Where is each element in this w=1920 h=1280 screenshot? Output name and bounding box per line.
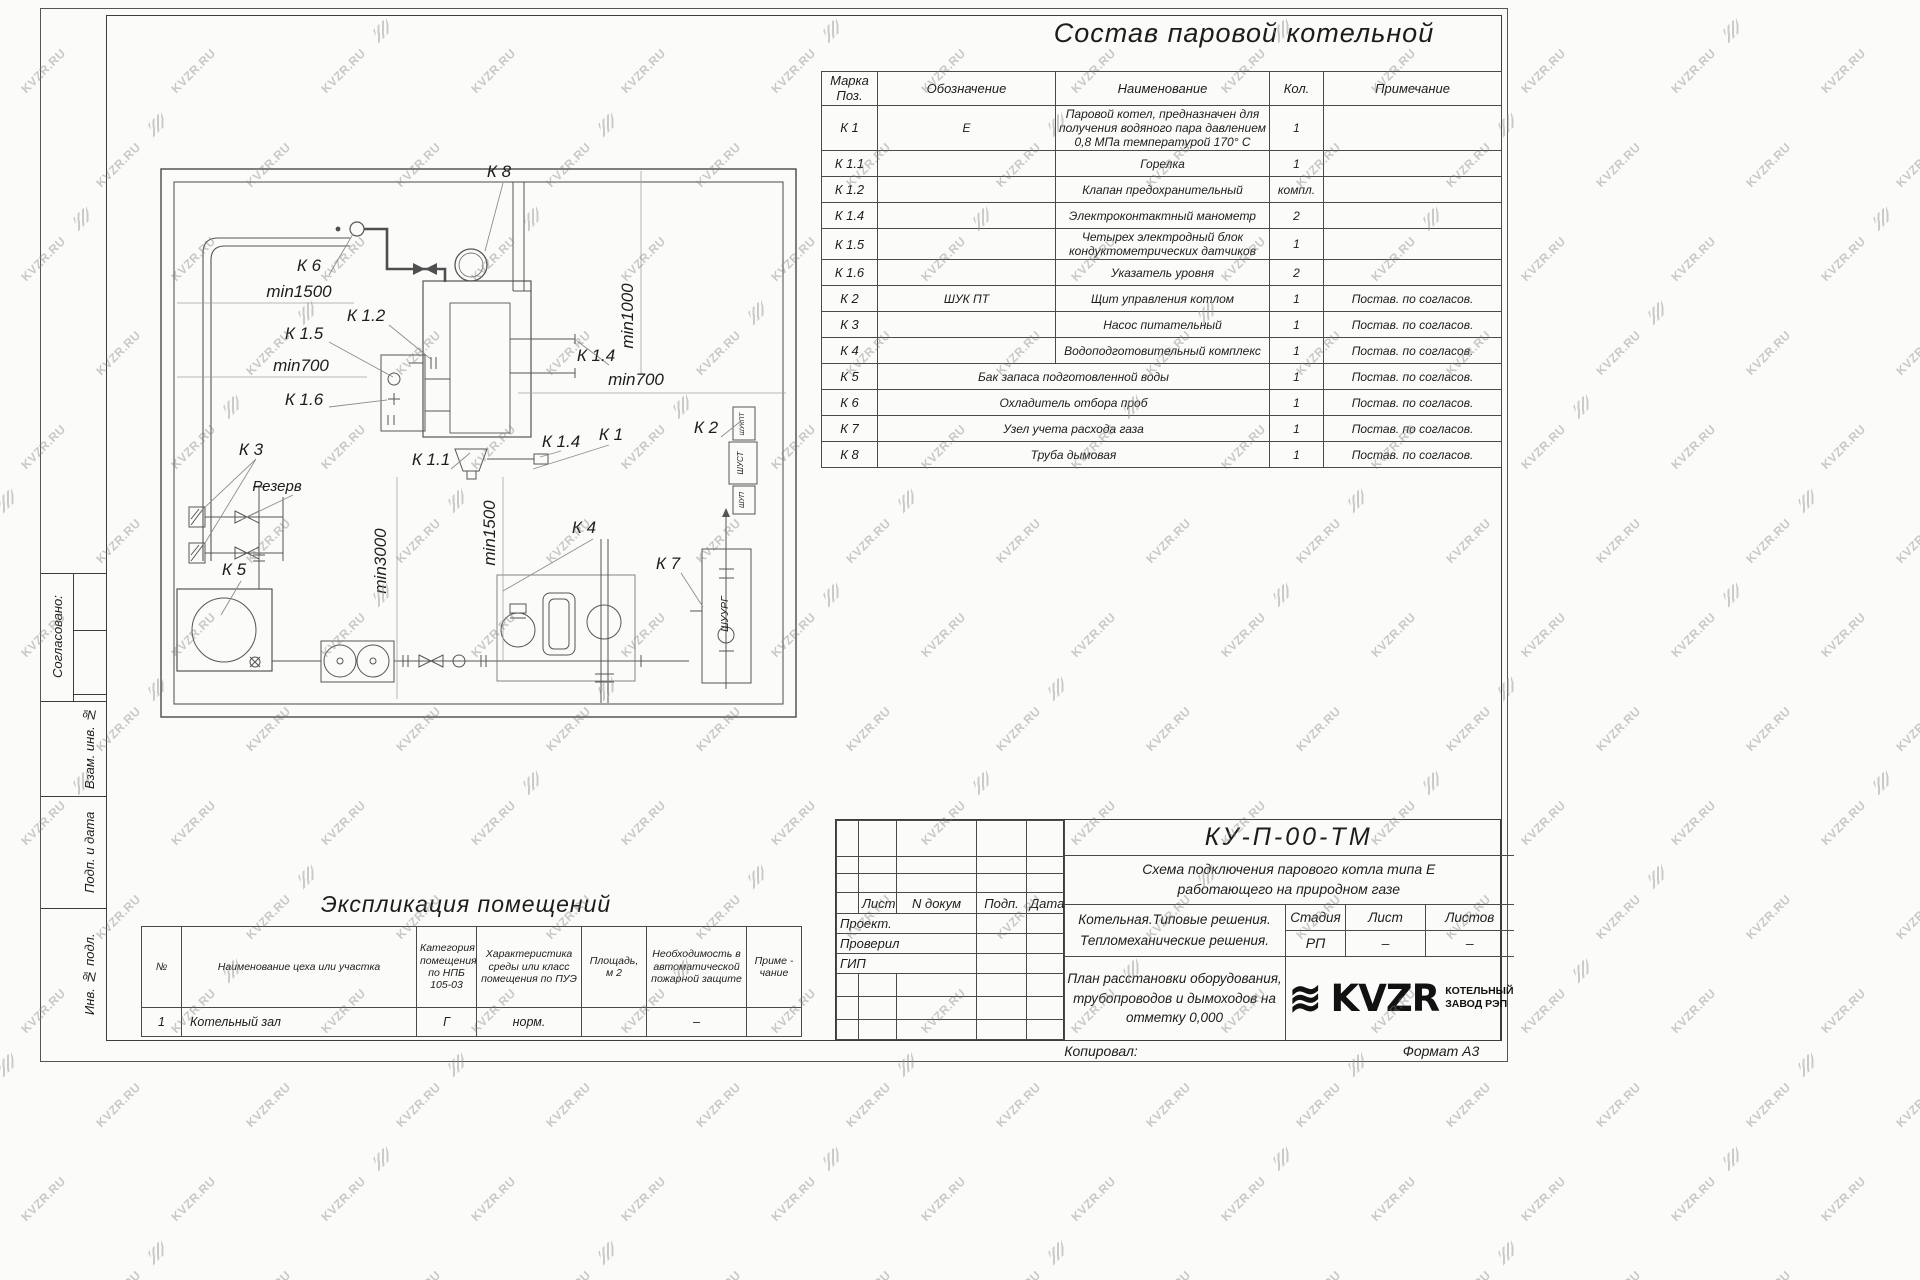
watermark-text: KVZR.RU bbox=[93, 1080, 143, 1130]
cell-empty bbox=[837, 1020, 859, 1040]
watermark-text: KVZR.RU bbox=[1368, 1174, 1418, 1224]
title-block-row: Проверил bbox=[837, 934, 1065, 954]
explication-cell: норм. bbox=[477, 1008, 582, 1037]
cell-empty bbox=[859, 874, 897, 893]
watermark-text: KVZR.RU bbox=[93, 1268, 143, 1280]
watermark-text: KVZR.RU bbox=[1893, 0, 1920, 2]
plan-label: ШУП bbox=[739, 491, 746, 508]
equipment-cell-note bbox=[1324, 229, 1502, 260]
equipment-cell-designation: ШУК ПТ bbox=[878, 286, 1056, 312]
stage-table: Стадия Лист Листов РП – – bbox=[1286, 905, 1514, 956]
stage-value: РП bbox=[1286, 931, 1346, 956]
equipment-cell-note bbox=[1324, 105, 1502, 150]
col-qty: Кол. bbox=[1270, 72, 1324, 106]
object-name: Котельная.Типовые решения. Тепломеханиче… bbox=[1064, 905, 1286, 956]
equipment-cell-note: Постав. по согласов. bbox=[1324, 312, 1502, 338]
watermark-text: KVZR.RU bbox=[93, 0, 143, 2]
col-designation: Обозначение bbox=[878, 72, 1056, 106]
equipment-cell-qty: 2 bbox=[1270, 203, 1324, 229]
object-line2: Тепломеханические решения. bbox=[1080, 931, 1269, 951]
kvzr-logo-text: KVZR bbox=[1331, 977, 1440, 1020]
equipment-cell-mark: К 1.2 bbox=[822, 177, 878, 203]
cell-empty bbox=[859, 857, 897, 874]
plan-label: min1000 bbox=[618, 283, 637, 349]
cell-empty bbox=[1027, 914, 1065, 934]
watermark-text: KVZR.RU bbox=[1893, 1080, 1920, 1130]
title-block-row bbox=[837, 974, 1065, 997]
equipment-cell-mark: К 6 bbox=[822, 390, 878, 416]
explication-col-5: Необходимость в автоматической пожарной … bbox=[647, 927, 747, 1008]
watermark-text: KVZR.RU bbox=[1818, 46, 1868, 96]
watermark-text: KVZR.RU bbox=[393, 1080, 443, 1130]
cell-empty bbox=[1027, 1020, 1065, 1040]
explication-col-3: Характеристика среды или класс помещения… bbox=[477, 927, 582, 1008]
cell-empty bbox=[837, 974, 859, 997]
equipment-cell-note: Постав. по согласов. bbox=[1324, 364, 1502, 390]
watermark-text: KVZR.RU bbox=[1518, 610, 1568, 660]
cell-empty bbox=[837, 893, 859, 914]
signature-role-label: Проверил bbox=[837, 934, 977, 954]
equipment-cell-qty: 1 bbox=[1270, 312, 1324, 338]
watermark-text: KVZR.RU bbox=[1443, 1268, 1493, 1280]
watermark-text: KVZR.RU bbox=[1593, 0, 1643, 2]
cell-empty bbox=[897, 1020, 977, 1040]
plan-label: ШУСТ bbox=[736, 450, 745, 474]
watermark-text: KVZR.RU bbox=[1068, 1174, 1118, 1224]
equipment-cell-designation: Бак запаса подготовленной воды bbox=[878, 364, 1270, 390]
equipment-cell-name: Насос питательный bbox=[1056, 312, 1270, 338]
col-note: Примечание bbox=[1324, 72, 1502, 106]
equipment-row: К 1.2Клапан предохранительныйкомпл. bbox=[822, 177, 1502, 203]
explication-title: Экспликация помещений bbox=[316, 891, 616, 918]
equipment-cell-note: Постав. по согласов. bbox=[1324, 416, 1502, 442]
watermark-hatch-icon bbox=[1573, 393, 1591, 419]
equipment-cell-qty: 1 bbox=[1270, 286, 1324, 312]
equipment-cell-qty: 1 bbox=[1270, 338, 1324, 364]
equipment-row: К 3Насос питательный1Постав. по согласов… bbox=[822, 312, 1502, 338]
cell-empty bbox=[897, 874, 977, 893]
watermark-text: KVZR.RU bbox=[393, 0, 443, 2]
plan-label: min1500 bbox=[266, 282, 332, 301]
watermark-text: KVZR.RU bbox=[1593, 892, 1643, 942]
plan-label: ШУУРГ bbox=[719, 595, 731, 632]
cell-empty bbox=[1027, 954, 1065, 974]
equipment-cell-designation: Е bbox=[878, 105, 1056, 150]
plan-labels: К 8К 6min1500К 1.2К 1.5min700К 1.6К 3Рез… bbox=[222, 162, 746, 632]
watermark-hatch-icon bbox=[0, 487, 16, 513]
plan-label: К 3 bbox=[239, 440, 264, 459]
scheme-title-line1: Схема подключения парового котла типа Е bbox=[1142, 860, 1435, 880]
watermark-text: KVZR.RU bbox=[993, 0, 1043, 2]
title-block-row: ГИП bbox=[837, 954, 1065, 974]
plan-label: К 4 bbox=[572, 518, 596, 537]
equipment-row: К 2ШУК ПТЩит управления котлом1Постав. п… bbox=[822, 286, 1502, 312]
cell-empty bbox=[859, 974, 897, 997]
sheet-header: Лист bbox=[1346, 905, 1426, 930]
equipment-row: К 7Узел учета расхода газа1Постав. по со… bbox=[822, 416, 1502, 442]
equipment-row: К 5Бак запаса подготовленной воды1Постав… bbox=[822, 364, 1502, 390]
watermark-text: KVZR.RU bbox=[1143, 1268, 1193, 1280]
col-name: Наименование bbox=[1056, 72, 1270, 106]
watermark-text: KVZR.RU bbox=[1218, 1174, 1268, 1224]
equipment-row: К 4Водоподготовительный комплекс1Постав.… bbox=[822, 338, 1502, 364]
watermark-text: KVZR.RU bbox=[543, 1080, 593, 1130]
plan-label: min700 bbox=[608, 370, 664, 389]
title-block-signatures: ЛистN докумПодп.ДатаПроект.ПроверилГИП bbox=[836, 820, 1064, 1040]
plan-label: К 8 bbox=[487, 162, 512, 181]
plan-label: К 6 bbox=[297, 256, 322, 275]
cell-empty bbox=[977, 1020, 1027, 1040]
logo-caption-line2: ЗАВОД РЭП bbox=[1445, 998, 1513, 1012]
watermark-text: KVZR.RU bbox=[1143, 0, 1193, 2]
object-line1: Котельная.Типовые решения. bbox=[1078, 910, 1271, 930]
watermark-text: KVZR.RU bbox=[1518, 46, 1568, 96]
equipment-cell-qty: 1 bbox=[1270, 105, 1324, 150]
equipment-cell-mark: К 1 bbox=[822, 105, 878, 150]
equipment-row: К 1.4Электроконтактный манометр2 bbox=[822, 203, 1502, 229]
explication-header-row: №Наименование цеха или участкаКатегория … bbox=[142, 927, 802, 1008]
watermark-text: KVZR.RU bbox=[618, 1174, 668, 1224]
watermark-text: KVZR.RU bbox=[18, 1174, 68, 1224]
title-block: ЛистN докумПодп.ДатаПроект.ПроверилГИП К… bbox=[835, 819, 1501, 1041]
cell-empty bbox=[1027, 997, 1065, 1020]
equipment-cell-mark: К 5 bbox=[822, 364, 878, 390]
watermark-text: KVZR.RU bbox=[468, 1174, 518, 1224]
equipment-cell-designation bbox=[878, 203, 1056, 229]
plan-label: min1500 bbox=[480, 500, 499, 566]
watermark-text: KVZR.RU bbox=[843, 1268, 893, 1280]
explication-col-6: Приме - чание bbox=[747, 927, 802, 1008]
signature-role-label: Проект. bbox=[837, 914, 977, 934]
drawing-canvas: Согласовано: Взам. инв. № Подп. и дата И… bbox=[0, 0, 1920, 1280]
drawing-sheet: Согласовано: Взам. инв. № Подп. и дата И… bbox=[40, 8, 1508, 1062]
watermark-text: KVZR.RU bbox=[1743, 1268, 1793, 1280]
watermark-text: KVZR.RU bbox=[543, 1268, 593, 1280]
explication-cell: Г bbox=[417, 1008, 477, 1037]
cell-empty bbox=[1027, 821, 1065, 857]
equipment-cell-mark: К 2 bbox=[822, 286, 878, 312]
equipment-cell-qty: 1 bbox=[1270, 151, 1324, 177]
cell-empty bbox=[977, 857, 1027, 874]
drawing-name-line2: трубопроводов и дымоходов на bbox=[1073, 989, 1276, 1009]
watermark-text: KVZR.RU bbox=[1818, 422, 1868, 472]
equipment-cell-mark: К 1.1 bbox=[822, 151, 878, 177]
plan-label: К 1.1 bbox=[412, 450, 450, 469]
equipment-cell-qty: 1 bbox=[1270, 416, 1324, 442]
logo-caption: КОТЕЛЬНЫЙ ЗАВОД РЭП bbox=[1445, 985, 1513, 1012]
explication-cell: 1 bbox=[142, 1008, 182, 1037]
explication-col-0: № bbox=[142, 927, 182, 1008]
watermark-hatch-icon bbox=[1873, 769, 1891, 795]
equipment-cell-name: Указатель уровня bbox=[1056, 260, 1270, 286]
title-block-row bbox=[837, 821, 1065, 857]
watermark-text: KVZR.RU bbox=[1593, 140, 1643, 190]
watermark-text: KVZR.RU bbox=[1743, 516, 1793, 566]
approved-label: Согласовано: bbox=[41, 573, 74, 701]
watermark-hatch-icon bbox=[1798, 1051, 1816, 1077]
stage-header: Стадия bbox=[1286, 905, 1346, 930]
equipment-row: К 8Труба дымовая1Постав. по согласов. bbox=[822, 442, 1502, 468]
plan-label: К 1.2 bbox=[347, 306, 386, 325]
equipment-cell-mark: К 1.4 bbox=[822, 203, 878, 229]
watermark-hatch-icon bbox=[0, 1051, 16, 1077]
watermark-hatch-icon bbox=[598, 1239, 616, 1265]
watermark-text: KVZR.RU bbox=[1518, 422, 1568, 472]
watermark-text: KVZR.RU bbox=[1743, 892, 1793, 942]
watermark-hatch-icon bbox=[1573, 957, 1591, 983]
plan-label: min700 bbox=[273, 356, 329, 375]
watermark-text: KVZR.RU bbox=[1668, 46, 1718, 96]
signature-col-header: Дата bbox=[1027, 893, 1065, 914]
watermark-hatch-icon bbox=[1048, 1239, 1066, 1265]
watermark-text: KVZR.RU bbox=[1593, 1080, 1643, 1130]
equipment-cell-designation bbox=[878, 177, 1056, 203]
equipment-cell-designation: Охладитель отбора проб bbox=[878, 390, 1270, 416]
col-mark: Марка Поз. bbox=[822, 72, 878, 106]
equipment-cell-note bbox=[1324, 177, 1502, 203]
watermark-text: KVZR.RU bbox=[1818, 1174, 1868, 1224]
signature-col-header: N докум bbox=[897, 893, 977, 914]
explication-row: 1Котельный залГнорм.– bbox=[142, 1008, 802, 1037]
watermark-text: KVZR.RU bbox=[693, 1080, 743, 1130]
inv-podl-label: Инв. № подл. bbox=[73, 908, 106, 1041]
equipment-cell-mark: К 4 bbox=[822, 338, 878, 364]
watermark-text: KVZR.RU bbox=[1668, 610, 1718, 660]
equipment-cell-name: Водоподготовительный комплекс bbox=[1056, 338, 1270, 364]
equipment-cell-qty: компл. bbox=[1270, 177, 1324, 203]
equipment-row: К 1.1Горелка1 bbox=[822, 151, 1502, 177]
sheets-value: – bbox=[1426, 931, 1514, 956]
title-block-row bbox=[837, 1020, 1065, 1040]
watermark-text: KVZR.RU bbox=[1743, 1080, 1793, 1130]
watermark-text: KVZR.RU bbox=[768, 1174, 818, 1224]
equipment-row: К 1.5Четырех электродный блок кондуктоме… bbox=[822, 229, 1502, 260]
sheet-value: – bbox=[1346, 931, 1426, 956]
watermark-text: KVZR.RU bbox=[1743, 328, 1793, 378]
cell-empty bbox=[977, 997, 1027, 1020]
watermark-text: KVZR.RU bbox=[1668, 422, 1718, 472]
cell-empty bbox=[977, 934, 1027, 954]
document-number: КУ-П-00-ТМ bbox=[1064, 820, 1514, 856]
plan-label: К 1.6 bbox=[285, 390, 324, 409]
watermark-hatch-icon bbox=[1498, 1239, 1516, 1265]
equipment-cell-note: Постав. по согласов. bbox=[1324, 442, 1502, 468]
floor-plan: К 8К 6min1500К 1.2К 1.5min700К 1.6К 3Рез… bbox=[141, 141, 811, 741]
watermark-hatch-icon bbox=[1648, 863, 1666, 889]
title-block-row bbox=[837, 997, 1065, 1020]
explication-cell bbox=[582, 1008, 647, 1037]
equipment-cell-mark: К 1.6 bbox=[822, 260, 878, 286]
equipment-cell-qty: 1 bbox=[1270, 390, 1324, 416]
drawing-name-line1: План расстановки оборудования, bbox=[1067, 969, 1281, 989]
cell-empty bbox=[977, 914, 1027, 934]
equipment-cell-qty: 1 bbox=[1270, 442, 1324, 468]
title-block-row: ЛистN докумПодп.Дата bbox=[837, 893, 1065, 914]
cell-empty bbox=[837, 821, 859, 857]
watermark-text: KVZR.RU bbox=[1743, 704, 1793, 754]
watermark-text: KVZR.RU bbox=[1593, 704, 1643, 754]
equipment-cell-mark: К 8 bbox=[822, 442, 878, 468]
watermark-text: KVZR.RU bbox=[693, 0, 743, 2]
watermark-hatch-icon bbox=[1723, 17, 1741, 43]
watermark-text: KVZR.RU bbox=[1668, 986, 1718, 1036]
strip-line bbox=[73, 694, 106, 695]
watermark-text: KVZR.RU bbox=[693, 1268, 743, 1280]
signature-col-header: Подп. bbox=[977, 893, 1027, 914]
watermark-hatch-icon bbox=[1273, 1145, 1291, 1171]
cell-empty bbox=[837, 997, 859, 1020]
equipment-cell-name: Горелка bbox=[1056, 151, 1270, 177]
equipment-cell-designation bbox=[878, 229, 1056, 260]
watermark-text: KVZR.RU bbox=[243, 0, 293, 2]
watermark-hatch-icon bbox=[1723, 1145, 1741, 1171]
watermark-text: KVZR.RU bbox=[1893, 1268, 1920, 1280]
watermark-text: KVZR.RU bbox=[1518, 986, 1568, 1036]
scheme-title-line2: работающего на природном газе bbox=[1178, 880, 1400, 900]
copied-label: Копировал: bbox=[1001, 1043, 1201, 1059]
logo-caption-line1: КОТЕЛЬНЫЙ bbox=[1445, 985, 1513, 999]
plan-label: К 2 bbox=[694, 418, 719, 437]
plan-label: К 5 bbox=[222, 560, 247, 579]
equipment-cell-note bbox=[1324, 203, 1502, 229]
equipment-header-row: Марка Поз. Обозначение Наименование Кол.… bbox=[822, 72, 1502, 106]
cell-empty bbox=[1027, 857, 1065, 874]
equipment-cell-note bbox=[1324, 260, 1502, 286]
cell-empty bbox=[1027, 874, 1065, 893]
watermark-text: KVZR.RU bbox=[1818, 234, 1868, 284]
cell-empty bbox=[977, 874, 1027, 893]
explication-cell: Котельный зал bbox=[182, 1008, 417, 1037]
cell-empty bbox=[1027, 974, 1065, 997]
cell-empty bbox=[897, 974, 977, 997]
page-title: Состав паровой котельной bbox=[1044, 18, 1444, 49]
watermark-text: KVZR.RU bbox=[1818, 798, 1868, 848]
cell-empty bbox=[897, 821, 977, 857]
equipment-table: Марка Поз. Обозначение Наименование Кол.… bbox=[821, 71, 1502, 468]
explication-col-4: Площадь, м 2 bbox=[582, 927, 647, 1008]
watermark-text: KVZR.RU bbox=[318, 1174, 368, 1224]
equipment-cell-designation bbox=[878, 260, 1056, 286]
equipment-cell-mark: К 3 bbox=[822, 312, 878, 338]
sheets-header: Листов bbox=[1426, 905, 1514, 930]
cell-empty bbox=[897, 857, 977, 874]
watermark-text: KVZR.RU bbox=[1293, 0, 1343, 2]
equipment-cell-name: Паровой котел, предназначен для получени… bbox=[1056, 105, 1270, 150]
watermark-hatch-icon bbox=[823, 1145, 841, 1171]
signature-col-header: Лист bbox=[859, 893, 897, 914]
format-label: Формат А3 bbox=[1361, 1043, 1521, 1059]
watermark-text: KVZR.RU bbox=[1893, 140, 1920, 190]
watermark-text: KVZR.RU bbox=[1668, 798, 1718, 848]
watermark-text: KVZR.RU bbox=[1518, 1174, 1568, 1224]
title-block-row: Проект. bbox=[837, 914, 1065, 934]
equipment-row: К 1.6Указатель уровня2 bbox=[822, 260, 1502, 286]
cell-empty bbox=[859, 997, 897, 1020]
watermark-text: KVZR.RU bbox=[1518, 798, 1568, 848]
plan-label: ШУКПТ bbox=[739, 412, 746, 436]
equipment-cell-qty: 2 bbox=[1270, 260, 1324, 286]
drawing-name-line3: отметку 0,000 bbox=[1126, 1008, 1223, 1028]
drawing-name: План расстановки оборудования, трубопров… bbox=[1064, 957, 1286, 1040]
watermark-hatch-icon bbox=[1798, 487, 1816, 513]
watermark-text: KVZR.RU bbox=[1893, 328, 1920, 378]
watermark-text: KVZR.RU bbox=[1593, 1268, 1643, 1280]
equipment-cell-mark: К 7 bbox=[822, 416, 878, 442]
vzam-inv-label: Взам. инв. № bbox=[73, 701, 106, 796]
company-logo: ≋ KVZR КОТЕЛЬНЫЙ ЗАВОД РЭП bbox=[1286, 957, 1514, 1040]
equipment-cell-qty: 1 bbox=[1270, 364, 1324, 390]
equipment-cell-designation: Труба дымовая bbox=[878, 442, 1270, 468]
watermark-text: KVZR.RU bbox=[993, 1080, 1043, 1130]
explication-col-1: Наименование цеха или участка bbox=[182, 927, 417, 1008]
watermark-hatch-icon bbox=[373, 1145, 391, 1171]
plan-label: К 1.4 bbox=[542, 432, 580, 451]
equipment-cell-name: Электроконтактный манометр bbox=[1056, 203, 1270, 229]
equipment-cell-mark: К 1.5 bbox=[822, 229, 878, 260]
signature-role-label: ГИП bbox=[837, 954, 977, 974]
watermark-text: KVZR.RU bbox=[1893, 516, 1920, 566]
plan-label: К 1 bbox=[599, 425, 623, 444]
watermark-text: KVZR.RU bbox=[1143, 1080, 1193, 1130]
equipment-cell-name: Щит управления котлом bbox=[1056, 286, 1270, 312]
equipment-cell-designation bbox=[878, 312, 1056, 338]
watermark-text: KVZR.RU bbox=[993, 1268, 1043, 1280]
equipment-shapes bbox=[177, 182, 757, 703]
cell-empty bbox=[1027, 934, 1065, 954]
equipment-cell-note bbox=[1324, 151, 1502, 177]
watermark-text: KVZR.RU bbox=[1518, 234, 1568, 284]
watermark-text: KVZR.RU bbox=[918, 1174, 968, 1224]
equipment-cell-qty: 1 bbox=[1270, 229, 1324, 260]
watermark-text: KVZR.RU bbox=[168, 1174, 218, 1224]
watermark-text: KVZR.RU bbox=[1443, 0, 1493, 2]
watermark-text: KVZR.RU bbox=[1443, 1080, 1493, 1130]
watermark-text: KVZR.RU bbox=[843, 1080, 893, 1130]
watermark-text: KVZR.RU bbox=[1893, 704, 1920, 754]
cell-empty bbox=[837, 874, 859, 893]
watermark-text: KVZR.RU bbox=[243, 1268, 293, 1280]
kvzr-logo-icon: ≋ bbox=[1289, 980, 1322, 1017]
watermark-text: KVZR.RU bbox=[243, 1080, 293, 1130]
watermark-text: KVZR.RU bbox=[1668, 234, 1718, 284]
watermark-hatch-icon bbox=[1723, 581, 1741, 607]
equipment-cell-note: Постав. по согласов. bbox=[1324, 338, 1502, 364]
watermark-text: KVZR.RU bbox=[543, 0, 593, 2]
explication-table: №Наименование цеха или участкаКатегория … bbox=[141, 926, 802, 1037]
cell-empty bbox=[977, 974, 1027, 997]
explication-cell bbox=[747, 1008, 802, 1037]
equipment-row: К 1ЕПаровой котел, предназначен для полу… bbox=[822, 105, 1502, 150]
watermark-text: KVZR.RU bbox=[1743, 0, 1793, 2]
title-block-row bbox=[837, 857, 1065, 874]
watermark-text: KVZR.RU bbox=[843, 0, 893, 2]
plan-label: К 1.5 bbox=[285, 324, 324, 343]
watermark-hatch-icon bbox=[148, 1239, 166, 1265]
plan-label: К 7 bbox=[656, 554, 681, 573]
watermark-text: KVZR.RU bbox=[1743, 140, 1793, 190]
plan-label: Резерв bbox=[252, 478, 301, 495]
watermark-text: KVZR.RU bbox=[1668, 1174, 1718, 1224]
plan-label: min3000 bbox=[371, 528, 390, 594]
strip-line bbox=[73, 630, 106, 631]
cell-empty bbox=[977, 954, 1027, 974]
equipment-cell-note: Постав. по согласов. bbox=[1324, 286, 1502, 312]
watermark-text: KVZR.RU bbox=[1293, 1080, 1343, 1130]
watermark-hatch-icon bbox=[1873, 205, 1891, 231]
cell-empty bbox=[977, 821, 1027, 857]
title-block-row bbox=[837, 874, 1065, 893]
watermark-text: KVZR.RU bbox=[1893, 892, 1920, 942]
